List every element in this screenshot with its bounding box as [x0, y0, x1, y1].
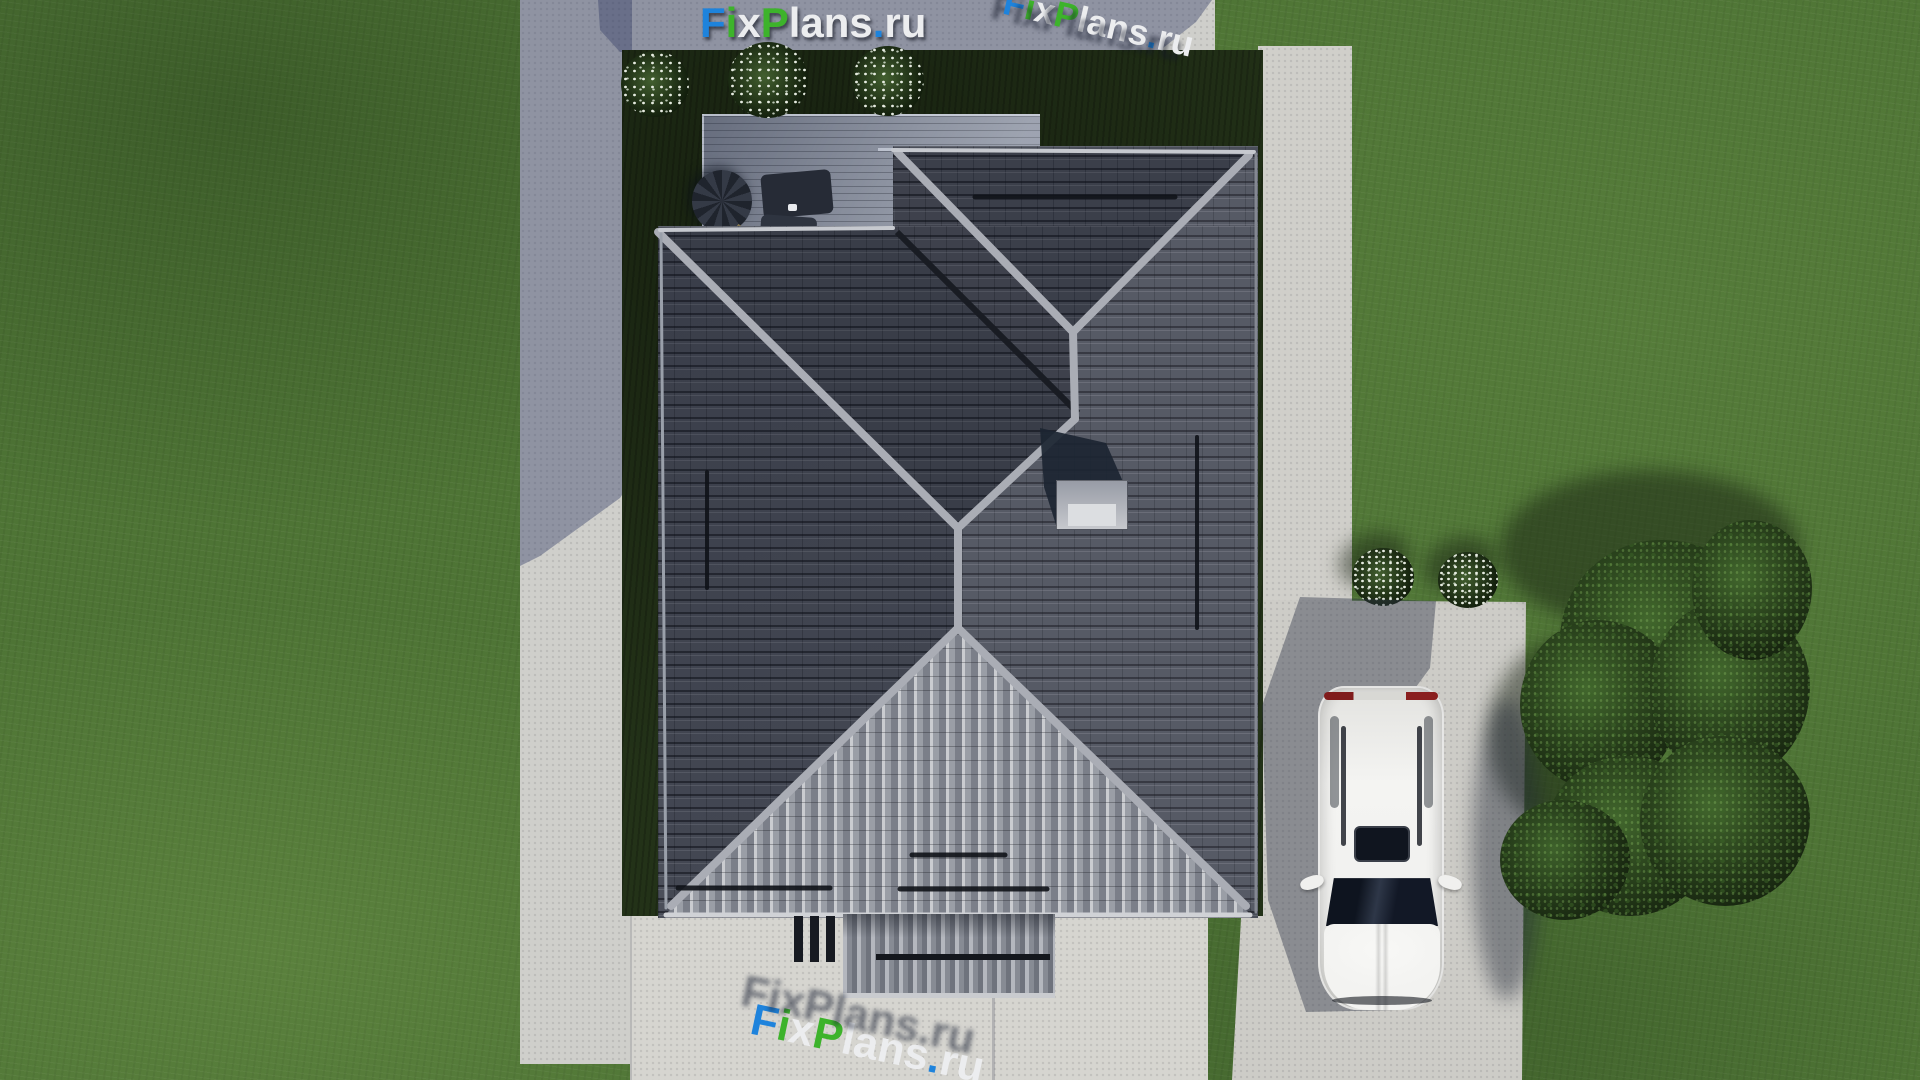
watermark-letter: n	[824, 0, 850, 46]
chimney-cap	[1068, 504, 1116, 526]
patio-sofa	[760, 169, 834, 219]
porch-post	[826, 916, 835, 962]
porch-post	[810, 916, 819, 962]
patio-umbrella-closed	[692, 170, 752, 232]
watermark-letter: s	[849, 0, 872, 46]
watermark-letter: i	[726, 0, 738, 46]
walkway-right-side	[1258, 46, 1352, 612]
suv-roof-rail	[1417, 726, 1422, 846]
aerial-render: FixPlans.ru FixPlans.ru FixPlans.ru	[0, 0, 1920, 1080]
tree	[1640, 736, 1810, 906]
porch-snow-guard	[876, 954, 1050, 960]
watermark-letter: F	[700, 0, 726, 46]
walkway-left-strip	[520, 0, 632, 1064]
suv-side-glass	[1424, 716, 1433, 808]
watermark-letter: P	[761, 0, 789, 46]
flower-bush	[1352, 548, 1414, 606]
flower-bush	[852, 46, 924, 116]
flower-bush	[621, 51, 689, 117]
tree	[1692, 520, 1812, 660]
watermark-letter: u	[901, 0, 927, 46]
watermark-letter: l	[789, 0, 801, 46]
suv-side-glass	[1330, 716, 1339, 808]
watermark-logo-main: FixPlans.ru	[700, 2, 926, 44]
patio-pillow	[788, 204, 797, 211]
porch-post	[794, 916, 803, 962]
tree	[1500, 800, 1630, 920]
watermark-letter: x	[737, 0, 760, 46]
watermark-letter: .	[873, 0, 885, 46]
flower-bush	[728, 42, 808, 118]
flower-bush	[1438, 552, 1498, 608]
watermark-letter: r	[884, 0, 900, 46]
watermark-letter: a	[800, 0, 823, 46]
suv-roof-rail	[1341, 726, 1346, 846]
suv-windshield	[1326, 874, 1438, 926]
suv-sunroof	[1354, 826, 1410, 862]
suv-front-trim	[1332, 996, 1432, 1005]
suv-taillights	[1324, 692, 1438, 700]
